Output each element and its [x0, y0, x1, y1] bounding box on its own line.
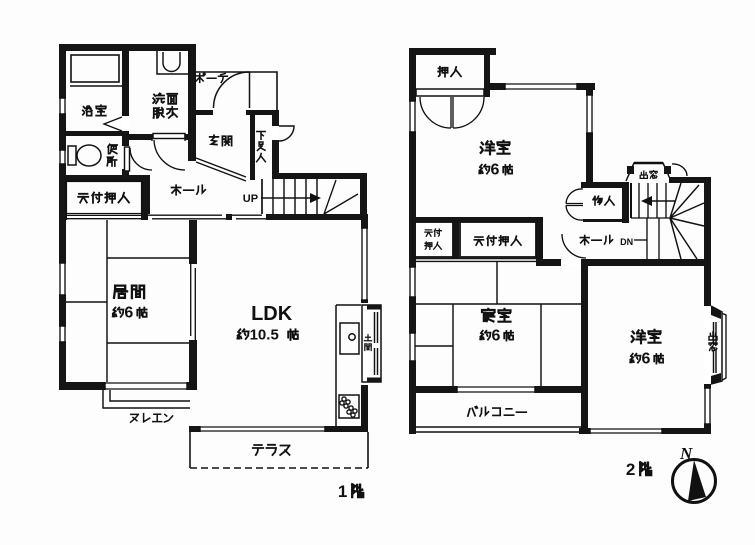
svg-text:6: 6: [124, 305, 133, 322]
svg-text:N: N: [679, 444, 693, 463]
svg-text:6: 6: [492, 327, 501, 344]
svg-text:DN: DN: [620, 237, 633, 247]
svg-text:2: 2: [626, 460, 635, 479]
svg-text:10.5: 10.5: [250, 327, 279, 344]
svg-text:UP: UP: [243, 193, 258, 205]
svg-text:LDK: LDK: [251, 303, 293, 325]
svg-text:1: 1: [338, 482, 347, 501]
svg-text:6: 6: [491, 161, 500, 178]
svg-text:6: 6: [642, 350, 651, 367]
